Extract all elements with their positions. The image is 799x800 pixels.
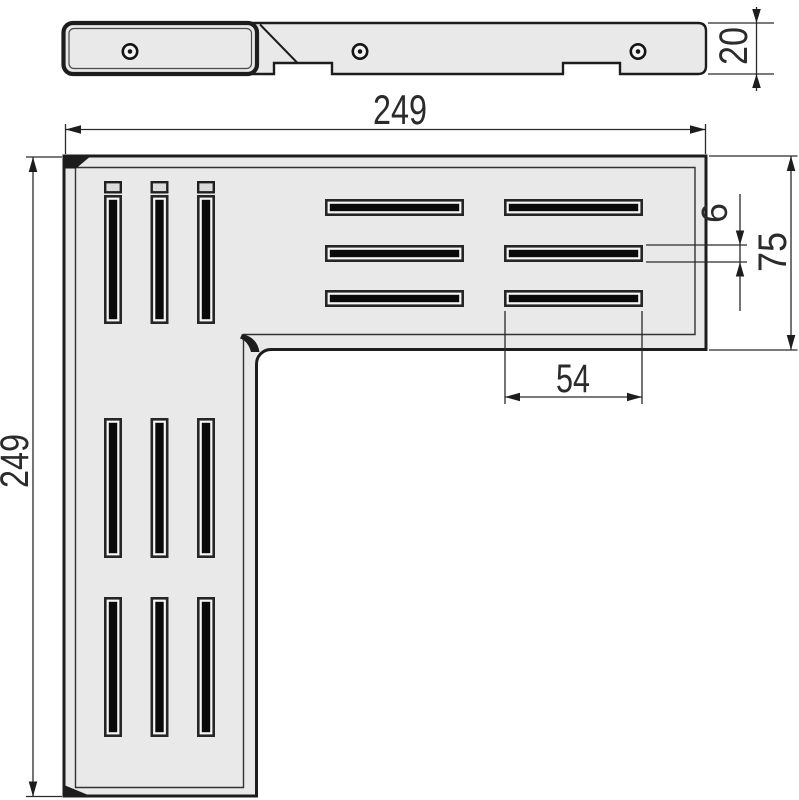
arrowhead [787,335,796,350]
arrowhead [66,125,82,134]
dim-profile-thickness: 20 [708,7,774,91]
dimension-label-arm-width: 75 [751,232,795,272]
screw-hole [353,44,367,58]
vertical-slot [104,597,122,737]
arrowhead [736,262,744,277]
dimension-label-slot-width: 6 [694,203,735,223]
side-view-end-cap [64,23,258,74]
dim-top-width: 249 [66,86,706,154]
side-view [64,23,707,74]
vertical-slot [197,597,215,737]
vertical-slot [151,181,169,324]
horizontal-slot [325,199,464,216]
horizontal-slot [504,290,643,307]
arrowhead [627,393,642,401]
arrowhead [736,231,744,246]
vertical-slot [151,418,169,558]
arrowhead [29,157,38,172]
arrowhead [690,125,706,134]
technical-drawing: 20 249 249 75 [0,0,799,800]
dimension-label-left-height: 249 [0,434,37,488]
technical-drawing-page: 20 249 249 75 [0,0,799,800]
vertical-slot [104,181,122,324]
dimension-label-top-width: 249 [373,86,427,133]
screw-hole [123,44,137,58]
arrowhead [752,9,761,23]
horizontal-slot [504,245,643,262]
vertical-slot [104,418,122,558]
horizontal-slot [325,290,464,307]
vertical-slot [197,418,215,558]
dimension-label-profile-thickness: 20 [712,27,756,65]
arrowhead [752,74,761,88]
horizontal-slot [325,245,464,262]
screw-hole [631,44,645,58]
dim-arm-width: 75 [709,156,798,350]
horizontal-slot [504,199,643,216]
dimension-label-slot-length: 54 [556,357,590,401]
plan-view [64,156,706,798]
arrowhead [505,393,520,401]
arrowhead [787,156,796,171]
vertical-slot [197,181,215,324]
arrowhead [29,782,38,797]
dim-left-height: 249 [0,157,62,797]
vertical-slot [151,597,169,737]
